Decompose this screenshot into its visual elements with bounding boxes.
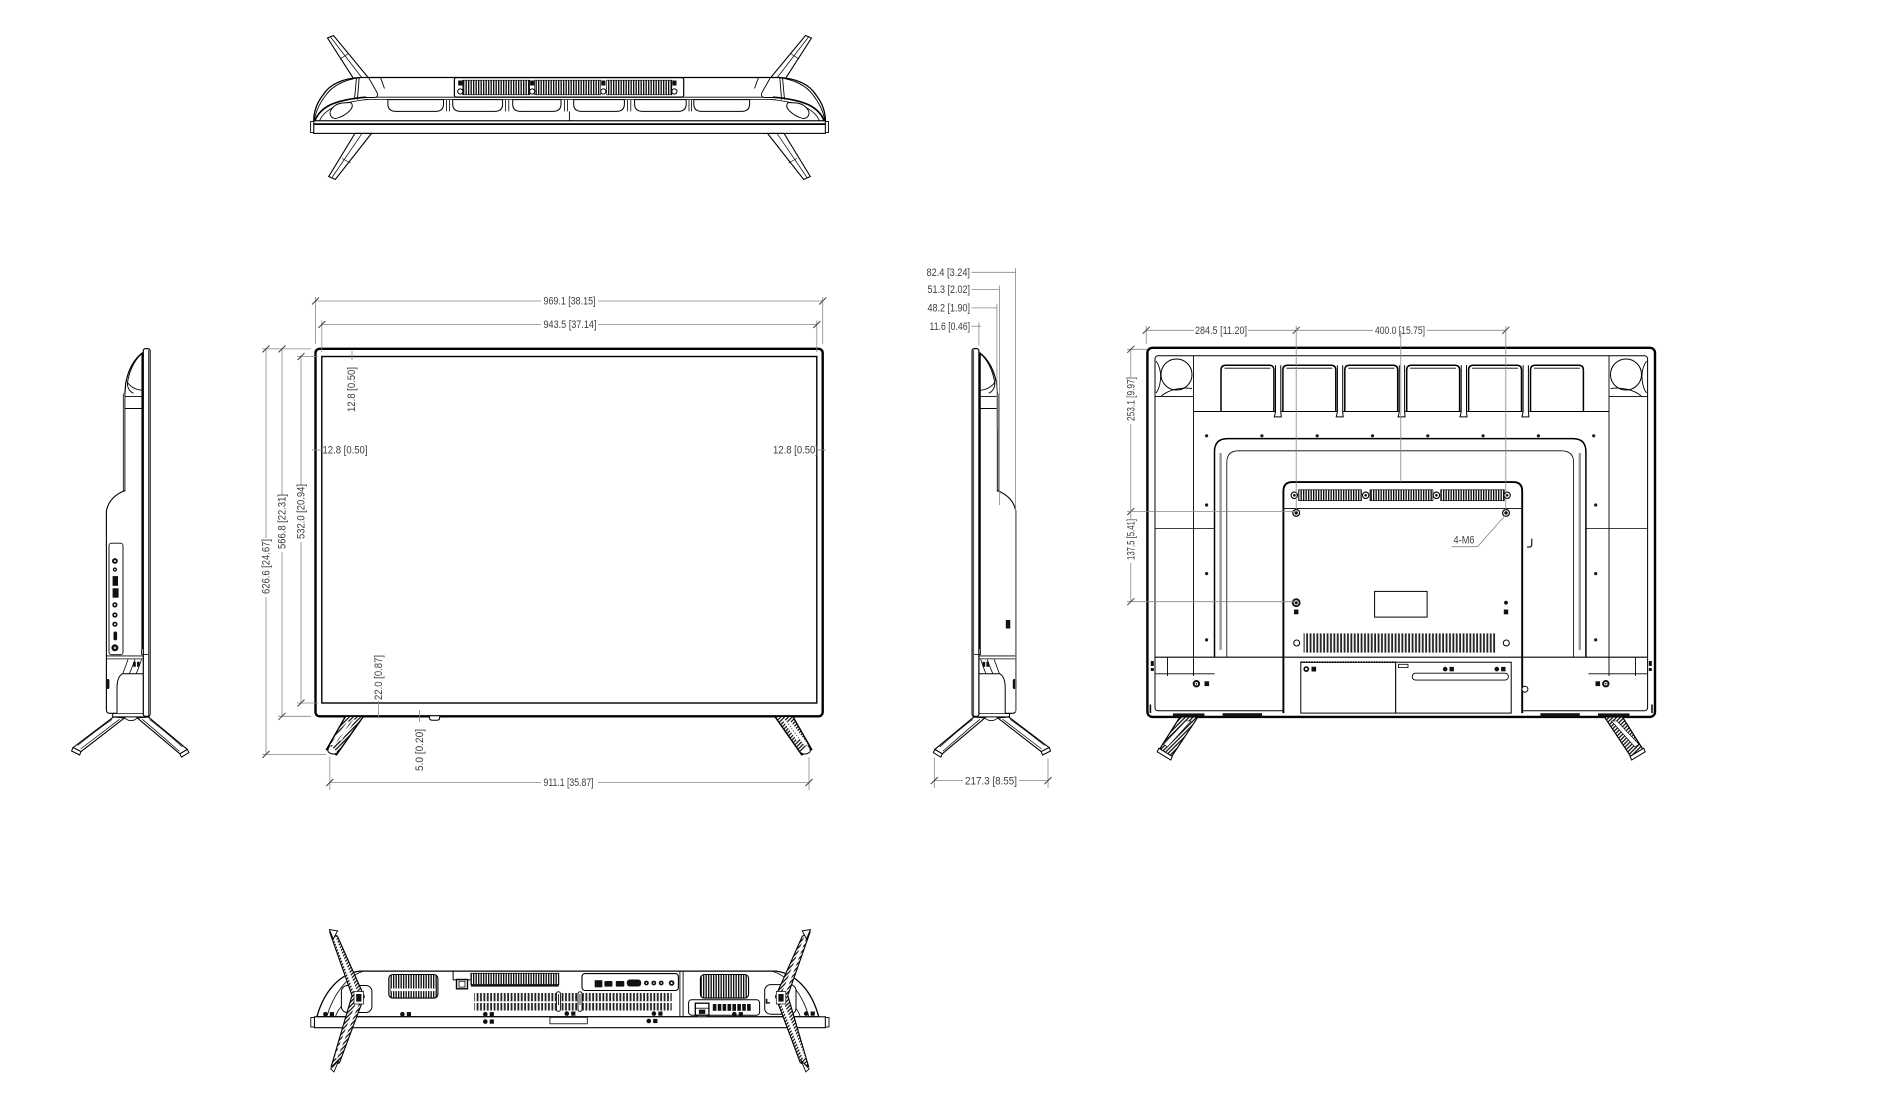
svg-text:48.2 [1.90]: 48.2 [1.90] — [928, 303, 971, 315]
svg-text:566.8 [22.31]: 566.8 [22.31] — [277, 494, 289, 549]
svg-text:284.5 [11.20]: 284.5 [11.20] — [1195, 325, 1247, 337]
svg-text:51.3 [2.02]: 51.3 [2.02] — [928, 284, 971, 296]
svg-text:911.1 [35.87]: 911.1 [35.87] — [544, 777, 594, 789]
svg-text:5.0 [0.20]: 5.0 [0.20] — [414, 729, 426, 771]
svg-text:12.8 [0.50]: 12.8 [0.50] — [346, 367, 358, 412]
svg-text:626.6 [24.67]: 626.6 [24.67] — [261, 539, 273, 594]
svg-text:11.6 [0.46]: 11.6 [0.46] — [930, 321, 971, 333]
svg-text:82.4 [3.24]: 82.4 [3.24] — [927, 267, 971, 279]
svg-text:400.0 [15.75]: 400.0 [15.75] — [1375, 325, 1425, 337]
svg-text:532.0 [20.94]: 532.0 [20.94] — [296, 484, 308, 539]
svg-text:253.1 [9.97]: 253.1 [9.97] — [1125, 377, 1137, 421]
svg-text:4-M6: 4-M6 — [1454, 535, 1475, 547]
svg-text:137.5 [5.41]: 137.5 [5.41] — [1125, 519, 1137, 560]
svg-text:12.8 [0.50]: 12.8 [0.50] — [773, 445, 818, 457]
svg-text:943.5 [37.14]: 943.5 [37.14] — [544, 319, 597, 331]
svg-text:12.8 [0.50]: 12.8 [0.50] — [323, 445, 368, 457]
svg-text:217.3 [8.55]: 217.3 [8.55] — [965, 775, 1017, 787]
svg-text:22.0 [0.87]: 22.0 [0.87] — [373, 655, 385, 700]
svg-text:969.1 [38.15]: 969.1 [38.15] — [544, 296, 596, 308]
